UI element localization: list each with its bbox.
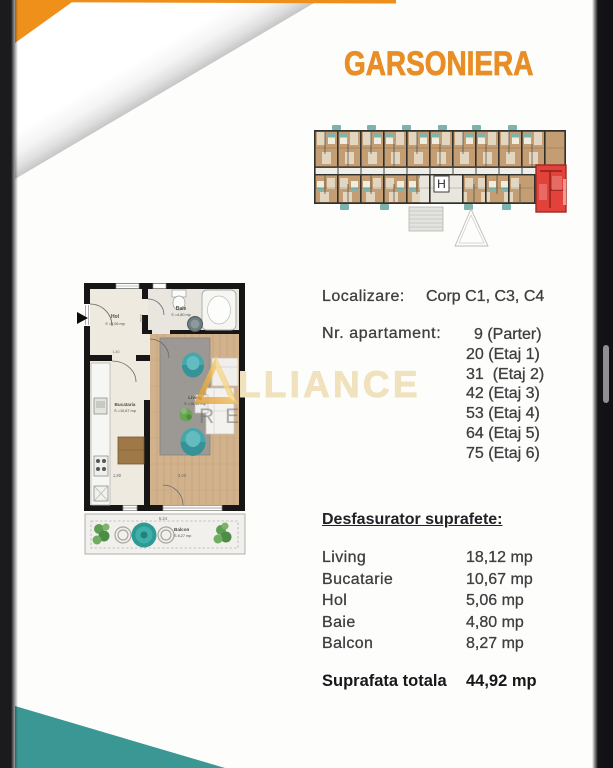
svg-text:Baie: Baie <box>176 306 187 312</box>
svg-text:S =5,06 mp: S =5,06 mp <box>105 322 125 326</box>
svg-text:S =4,80 mp: S =4,80 mp <box>171 313 191 317</box>
svg-text:1,80: 1,80 <box>113 473 122 478</box>
svg-text:Balcon: Balcon <box>174 527 190 532</box>
svg-text:3,00: 3,00 <box>178 473 187 478</box>
svg-text:5,24: 5,24 <box>159 516 168 521</box>
svg-text:Hol: Hol <box>111 314 120 320</box>
svg-text:3,52: 3,52 <box>139 314 144 323</box>
svg-text:H: H <box>437 177 446 191</box>
svg-text:S =10,67 mp: S =10,67 mp <box>114 409 136 413</box>
svg-text:S 8,27 mp: S 8,27 mp <box>174 534 191 538</box>
svg-text:Bucataria: Bucataria <box>115 402 136 407</box>
svg-text:1,40: 1,40 <box>113 350 120 354</box>
